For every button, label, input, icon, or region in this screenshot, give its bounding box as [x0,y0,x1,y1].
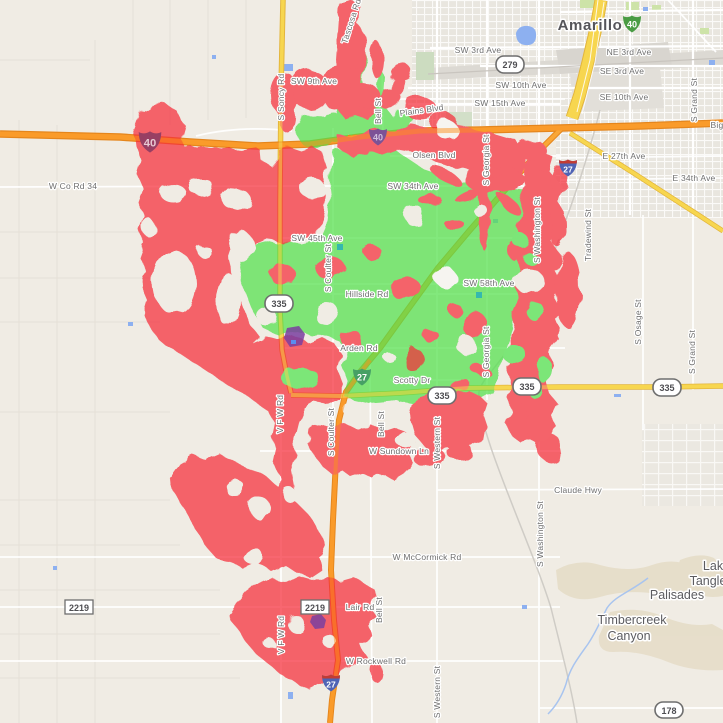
svg-text:W McCormick Rd: W McCormick Rd [393,552,462,562]
svg-text:V F W Rd: V F W Rd [276,616,286,655]
svg-text:S Georgia St: S Georgia St [481,134,491,186]
svg-text:40: 40 [373,132,383,142]
svg-text:335: 335 [271,299,286,309]
svg-text:W Rockwell Rd: W Rockwell Rd [346,656,406,666]
svg-text:Tangle: Tangle [690,574,723,588]
svg-text:Bell St: Bell St [376,411,386,437]
svg-text:S Washington St: S Washington St [532,197,542,263]
svg-text:S Coulter St: S Coulter St [326,407,336,456]
svg-text:S Western St: S Western St [432,665,442,718]
svg-text:Timbercreek: Timbercreek [598,613,668,627]
svg-text:S Osage St: S Osage St [633,299,643,345]
svg-text:W Co Rd 34: W Co Rd 34 [49,181,97,191]
svg-text:S Western St: S Western St [432,416,442,469]
svg-text:Amarillo: Amarillo [558,17,623,34]
svg-text:Hillside Rd: Hillside Rd [346,289,389,299]
svg-text:Tradewind St: Tradewind St [583,208,593,261]
svg-text:335: 335 [659,383,674,393]
svg-text:Olsen Blvd: Olsen Blvd [412,150,455,160]
svg-text:Lak: Lak [703,559,723,573]
svg-text:SW 58th Ave: SW 58th Ave [463,278,514,288]
svg-text:S Grand St: S Grand St [689,78,699,122]
svg-text:Big: Big [711,120,723,130]
svg-text:335: 335 [519,382,534,392]
svg-text:Lair Rd: Lair Rd [346,602,375,612]
svg-text:27: 27 [326,679,336,689]
svg-text:Bell St: Bell St [374,597,384,623]
svg-text:SE 3rd Ave: SE 3rd Ave [600,66,644,76]
svg-text:27: 27 [357,372,367,382]
svg-text:279: 279 [502,60,517,70]
svg-text:Bell St: Bell St [373,98,383,124]
svg-text:SW 15th Ave: SW 15th Ave [474,98,525,108]
svg-text:40: 40 [627,19,637,29]
svg-text:S Washington St: S Washington St [535,501,545,567]
svg-text:Palisades: Palisades [650,588,704,602]
svg-text:27: 27 [563,164,573,174]
svg-text:40: 40 [144,137,157,149]
svg-text:E 27th Ave: E 27th Ave [603,151,646,161]
svg-text:W Sundown Ln: W Sundown Ln [369,446,429,456]
svg-text:178: 178 [661,706,676,716]
svg-text:S Grand St: S Grand St [687,330,697,374]
svg-text:E 34th Ave: E 34th Ave [673,173,716,183]
svg-text:2219: 2219 [305,603,325,613]
svg-text:NE 3rd Ave: NE 3rd Ave [607,47,652,57]
svg-text:Arden Rd: Arden Rd [340,343,378,353]
svg-text:2219: 2219 [69,603,89,613]
svg-text:SE 10th Ave: SE 10th Ave [600,92,649,102]
svg-text:S Georgia St: S Georgia St [481,326,491,378]
svg-text:SW 3rd Ave: SW 3rd Ave [455,45,502,55]
svg-text:SW 10th Ave: SW 10th Ave [495,80,546,90]
svg-text:Canyon: Canyon [607,629,650,643]
svg-text:SW 34th Ave: SW 34th Ave [387,181,438,191]
svg-text:S Coulter St: S Coulter St [323,243,333,292]
svg-text:335: 335 [434,391,449,401]
svg-text:Scotty Dr: Scotty Dr [394,375,431,385]
svg-text:SW 45th Ave: SW 45th Ave [291,233,342,243]
svg-text:SW 9th Ave: SW 9th Ave [291,76,337,86]
svg-text:S Soncy Rd: S Soncy Rd [276,73,286,120]
svg-text:Claude Hwy: Claude Hwy [554,485,602,495]
svg-text:V F W Rd: V F W Rd [275,395,285,434]
